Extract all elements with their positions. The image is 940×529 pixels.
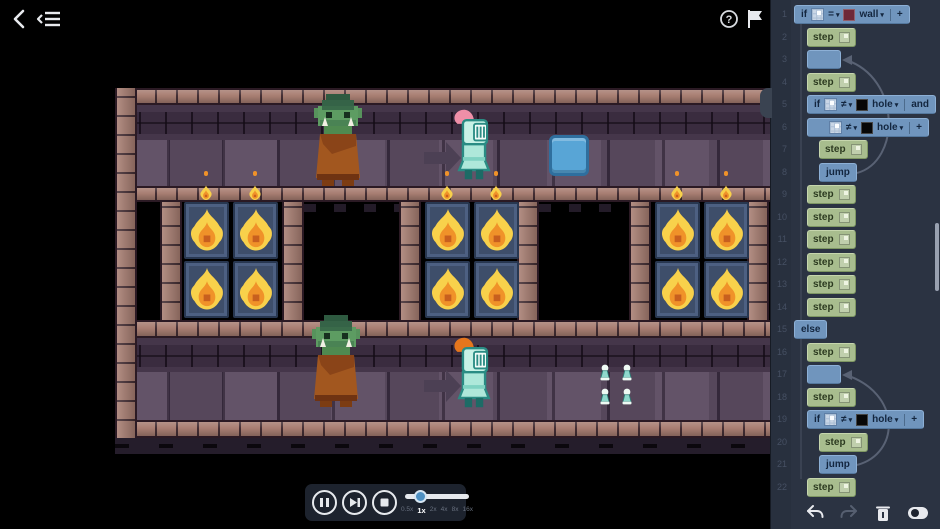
step-label: step xyxy=(813,347,834,358)
code-panel: 12345678910111213141516171819202122 if=▾… xyxy=(770,0,940,529)
foundation-band xyxy=(115,438,770,454)
flame-icon xyxy=(707,203,747,258)
flame-icon xyxy=(428,262,468,317)
flag-button[interactable] xyxy=(746,8,764,30)
pause-button[interactable] xyxy=(312,490,337,515)
step-label: step xyxy=(813,392,834,403)
undo-button[interactable] xyxy=(805,503,825,523)
if-block[interactable]: if=▾wall▾+ xyxy=(794,5,910,24)
corridor-top-wall xyxy=(115,105,770,140)
line-number: 17 xyxy=(771,369,787,379)
if-block[interactable]: if≠▾hole▾+ xyxy=(807,410,924,429)
tile-chip-icon[interactable] xyxy=(839,189,850,200)
chevron-down-icon: ▾ xyxy=(880,12,884,19)
ember-dot xyxy=(494,171,498,176)
operator-dropdown[interactable]: ≠▾ xyxy=(841,99,852,110)
else-block[interactable]: else xyxy=(794,320,827,339)
torch-flame-icon xyxy=(670,180,684,206)
step-label: step xyxy=(813,482,834,493)
step-block[interactable]: step xyxy=(819,140,868,159)
step-label: step xyxy=(813,257,834,268)
line-number: 16 xyxy=(771,347,787,357)
flame-icon xyxy=(236,203,276,258)
chevron-down-icon: ▾ xyxy=(900,125,904,132)
pawn-marker xyxy=(598,388,612,406)
speed-label: 16x xyxy=(463,506,473,515)
operator-dropdown[interactable]: =▾ xyxy=(828,9,839,20)
value-dropdown[interactable]: hole▾ xyxy=(872,414,898,425)
if-keyword: if xyxy=(814,414,820,425)
line-number: 6 xyxy=(771,122,787,132)
step-forward-button[interactable] xyxy=(342,490,367,515)
operator-dropdown[interactable]: ≠▾ xyxy=(846,122,857,133)
flame-icon xyxy=(658,203,698,258)
brick-pillar xyxy=(517,202,539,320)
hole-swatch-icon[interactable] xyxy=(856,414,868,426)
chevron-down-icon: ▾ xyxy=(895,417,899,424)
tile-chip-icon[interactable] xyxy=(839,77,850,88)
step-label: step xyxy=(813,302,834,313)
if-keyword: if xyxy=(801,9,807,20)
speed-slider[interactable]: 0.5x1x2x4x8x16x xyxy=(405,489,471,517)
ember-dot xyxy=(445,171,449,176)
game-viewport: ? 0.5x1x2x4x8x16x xyxy=(0,0,770,529)
back-button[interactable] xyxy=(10,8,30,30)
ember-dot xyxy=(724,171,728,176)
pawn-marker xyxy=(620,364,634,382)
chevron-down-icon: ▾ xyxy=(854,125,858,132)
add-condition-button[interactable]: + xyxy=(916,122,922,133)
and-connector[interactable]: and xyxy=(911,99,929,110)
line-number: 11 xyxy=(771,234,787,244)
ember-dot xyxy=(204,171,208,176)
torch-flame-icon xyxy=(719,180,733,206)
fire-brazier xyxy=(184,261,229,318)
help-button[interactable]: ? xyxy=(719,9,739,29)
add-condition-button[interactable]: + xyxy=(897,9,903,20)
step-label: step xyxy=(813,189,834,200)
pawn-marker xyxy=(598,364,612,382)
step-block[interactable]: step xyxy=(807,253,856,272)
fire-brazier xyxy=(655,261,700,318)
app-window: ? 0.5x1x2x4x8x16x 1234567 xyxy=(0,0,940,529)
speed-label: 2x xyxy=(430,506,437,515)
hole-swatch-icon[interactable] xyxy=(856,99,868,111)
tile-chip-icon[interactable] xyxy=(839,32,850,43)
line-number: 21 xyxy=(771,459,787,469)
line-number: 9 xyxy=(771,189,787,199)
divider xyxy=(904,99,905,111)
step-block[interactable]: step xyxy=(807,28,856,47)
step-label: step xyxy=(825,144,846,155)
brick-wall-bottom xyxy=(115,420,770,438)
torch-flame-icon xyxy=(248,180,262,206)
pawn-marker xyxy=(620,388,634,406)
line-number: 15 xyxy=(771,324,787,334)
speed-label: 0.5x xyxy=(401,506,413,515)
speed-label: 1x xyxy=(417,506,425,515)
step-label: step xyxy=(825,437,846,448)
wall-swatch-icon[interactable] xyxy=(843,9,855,21)
jump-label: jump xyxy=(826,167,850,178)
goblin-top xyxy=(314,94,362,186)
value-dropdown[interactable]: wall▾ xyxy=(859,9,883,20)
operator-dropdown[interactable]: ≠▾ xyxy=(841,414,852,425)
brick-pillar xyxy=(282,202,304,320)
tile-chip-icon[interactable] xyxy=(839,302,850,313)
empty-block[interactable] xyxy=(807,365,841,384)
line-number: 2 xyxy=(771,32,787,42)
line-number: 20 xyxy=(771,437,787,447)
step-label: step xyxy=(813,32,834,43)
fire-brazier xyxy=(425,261,470,318)
line-number: 7 xyxy=(771,144,787,154)
fire-brazier xyxy=(704,261,749,318)
step-block[interactable]: step xyxy=(807,230,856,249)
corridor-bottom-wall xyxy=(115,338,770,372)
ember-dot xyxy=(253,171,257,176)
line-number: 5 xyxy=(771,99,787,109)
scope-guide-line xyxy=(800,24,802,479)
slider-knob[interactable] xyxy=(414,490,427,503)
chevron-down-icon: ▾ xyxy=(836,12,840,19)
step-label: step xyxy=(813,279,834,290)
playback-bar: 0.5x1x2x4x8x16x xyxy=(305,484,466,521)
speed-labels: 0.5x1x2x4x8x16x xyxy=(401,506,473,515)
flame-icon xyxy=(428,203,468,258)
add-condition-button[interactable]: + xyxy=(911,414,917,425)
speed-label: 8x xyxy=(452,506,459,515)
tile-chip-icon[interactable] xyxy=(839,234,850,245)
flame-icon xyxy=(658,262,698,317)
speed-label: 4x xyxy=(441,506,448,515)
step-label: step xyxy=(813,212,834,223)
left-wall-pillar xyxy=(115,88,137,438)
if-keyword: if xyxy=(814,99,820,110)
line-number-gutter: 12345678910111213141516171819202122 xyxy=(771,0,791,529)
brick-wall-mid xyxy=(115,320,770,338)
brick-pillar xyxy=(747,202,769,320)
divider xyxy=(890,9,891,21)
jump-block[interactable]: jump xyxy=(819,163,857,182)
panel-resize-handle[interactable] xyxy=(760,88,772,118)
collapse-menu-button[interactable] xyxy=(36,8,62,30)
tile-selector-icon[interactable] xyxy=(811,8,824,21)
jump-block[interactable]: jump xyxy=(819,455,857,474)
chevron-down-icon: ▾ xyxy=(849,102,853,109)
ember-dot xyxy=(675,171,679,176)
goblin-bottom xyxy=(312,310,360,412)
scrollbar-thumb[interactable] xyxy=(935,223,939,291)
step-block[interactable]: step xyxy=(807,343,856,362)
hole-swatch-icon[interactable] xyxy=(861,122,873,134)
cond-block[interactable]: ≠▾hole▾+ xyxy=(807,118,929,137)
step-block[interactable]: step xyxy=(807,298,856,317)
step-block[interactable]: step xyxy=(807,185,856,204)
step-block[interactable]: step xyxy=(807,388,856,407)
fire-brazier xyxy=(184,202,229,259)
fire-brazier xyxy=(233,202,278,259)
line-number: 8 xyxy=(771,167,787,177)
chevron-down-icon: ▾ xyxy=(895,102,899,109)
step-label: step xyxy=(813,234,834,245)
line-number: 10 xyxy=(771,212,787,222)
fire-brazier xyxy=(425,202,470,259)
fire-brazier xyxy=(655,202,700,259)
chevron-down-icon: ▾ xyxy=(849,417,853,424)
tile-chip-icon[interactable] xyxy=(839,212,850,223)
value-dropdown[interactable]: hole▾ xyxy=(872,99,898,110)
flame-icon xyxy=(477,262,517,317)
step-label: step xyxy=(813,77,834,88)
step-block[interactable]: step xyxy=(807,478,856,497)
svg-text:?: ? xyxy=(726,14,733,26)
tile-chip-icon[interactable] xyxy=(839,482,850,493)
brick-pillar xyxy=(629,202,651,320)
else-label: else xyxy=(801,324,820,335)
divider xyxy=(909,122,910,134)
line-number: 19 xyxy=(771,414,787,424)
toggle-button[interactable] xyxy=(907,503,927,523)
brick-pillar xyxy=(399,202,421,320)
code-toolbar xyxy=(771,496,940,529)
tile-chip-icon[interactable] xyxy=(851,437,862,448)
flame-icon xyxy=(707,262,747,317)
torch-flame-icon xyxy=(440,180,454,206)
line-number: 4 xyxy=(771,77,787,87)
tile-selector-icon[interactable] xyxy=(824,98,837,111)
knight-top xyxy=(450,108,498,184)
knight-bottom xyxy=(450,336,498,412)
fire-brazier xyxy=(474,261,519,318)
line-number: 13 xyxy=(771,279,787,289)
if-block[interactable]: if≠▾hole▾and xyxy=(807,95,936,114)
fire-brazier xyxy=(474,202,519,259)
push-block xyxy=(549,135,589,176)
line-number: 14 xyxy=(771,302,787,312)
flame-icon xyxy=(236,262,276,317)
line-number: 22 xyxy=(771,482,787,492)
step-block[interactable]: step xyxy=(807,208,856,227)
divider xyxy=(904,414,905,426)
tile-selector-icon[interactable] xyxy=(824,413,837,426)
line-number: 12 xyxy=(771,257,787,267)
tile-chip-icon[interactable] xyxy=(839,257,850,268)
step-block[interactable]: step xyxy=(807,73,856,92)
brick-wall-top xyxy=(115,88,770,105)
fire-brazier xyxy=(233,261,278,318)
jump-label: jump xyxy=(826,459,850,470)
line-number: 1 xyxy=(771,9,787,19)
line-number: 3 xyxy=(771,54,787,64)
fire-gallery xyxy=(115,202,770,320)
flame-icon xyxy=(477,203,517,258)
step-block[interactable]: step xyxy=(819,433,868,452)
passage-lintel-shadow xyxy=(539,204,629,212)
flame-icon xyxy=(187,203,227,258)
step-block[interactable]: step xyxy=(807,275,856,294)
empty-block[interactable] xyxy=(807,50,841,69)
passage-lintel-shadow xyxy=(304,204,399,212)
tile-chip-icon[interactable] xyxy=(851,144,862,155)
tile-chip-icon[interactable] xyxy=(839,279,850,290)
flame-icon xyxy=(187,262,227,317)
stop-button[interactable] xyxy=(372,490,397,515)
tile-chip-icon[interactable] xyxy=(839,347,850,358)
tile-selector-icon[interactable] xyxy=(829,121,842,134)
fire-brazier xyxy=(704,202,749,259)
redo-button[interactable] xyxy=(839,503,859,523)
delete-button[interactable] xyxy=(873,503,893,523)
torch-flame-icon xyxy=(489,180,503,206)
torch-flame-icon xyxy=(199,180,213,206)
tile-chip-icon[interactable] xyxy=(839,392,850,403)
line-number: 18 xyxy=(771,392,787,402)
brick-pillar xyxy=(160,202,182,320)
value-dropdown[interactable]: hole▾ xyxy=(877,122,903,133)
